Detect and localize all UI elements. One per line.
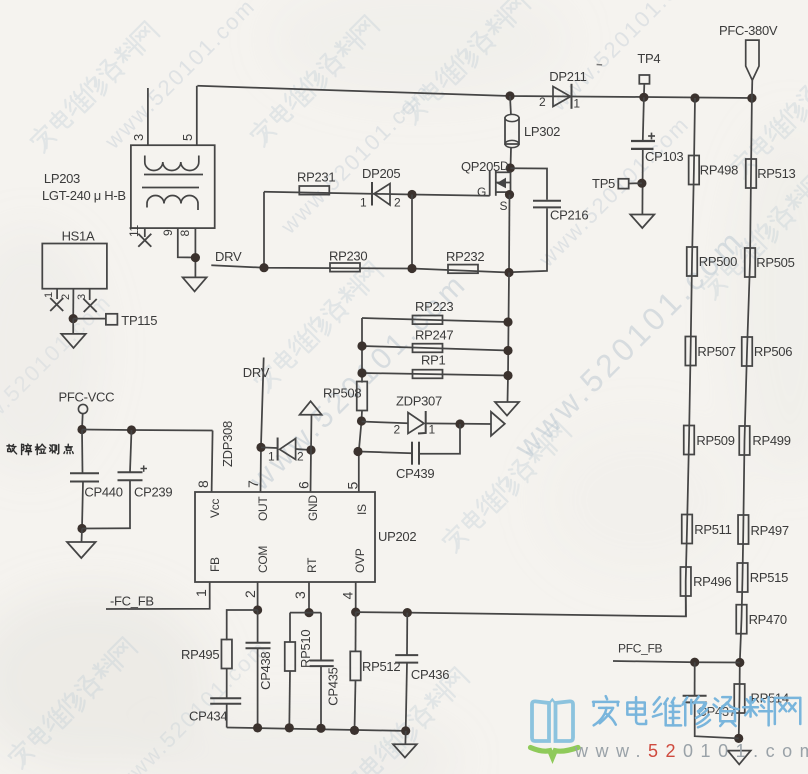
svg-text:G: G xyxy=(477,185,486,199)
svg-text:RP499: RP499 xyxy=(752,433,790,448)
svg-text:11: 11 xyxy=(127,225,141,237)
svg-text:4: 4 xyxy=(340,592,356,600)
svg-text:1: 1 xyxy=(360,196,367,210)
svg-text:CP436: CP436 xyxy=(411,667,449,682)
svg-text:RP505: RP505 xyxy=(756,255,794,270)
svg-text:OVP: OVP xyxy=(353,548,367,573)
svg-text:www.520101.com: www.520101.com xyxy=(574,741,808,761)
svg-text:RP506: RP506 xyxy=(754,344,792,359)
svg-text:5: 5 xyxy=(180,134,195,141)
svg-text:CP239: CP239 xyxy=(134,485,172,500)
svg-text:-FC_FB: -FC_FB xyxy=(110,594,154,609)
svg-text:CP438: CP438 xyxy=(258,652,273,690)
svg-text:8: 8 xyxy=(195,480,211,488)
svg-text:TP5: TP5 xyxy=(592,176,615,191)
svg-text:1: 1 xyxy=(43,292,55,298)
svg-text:RP500: RP500 xyxy=(699,254,737,269)
svg-text:FB: FB xyxy=(208,557,222,572)
svg-text:CP440: CP440 xyxy=(84,485,122,500)
svg-text:CP216: CP216 xyxy=(550,208,588,223)
svg-text:1: 1 xyxy=(429,423,436,437)
svg-text:RP507: RP507 xyxy=(697,344,735,359)
svg-text:RP495: RP495 xyxy=(181,647,219,662)
svg-text:2: 2 xyxy=(394,423,401,437)
svg-text:RP1: RP1 xyxy=(421,353,445,368)
svg-text:TP4: TP4 xyxy=(637,51,660,66)
svg-text:3: 3 xyxy=(292,591,308,599)
svg-text:RP230: RP230 xyxy=(329,249,367,264)
svg-text:COM: COM xyxy=(256,546,270,573)
svg-text:DP205: DP205 xyxy=(362,166,400,181)
svg-text:DRV: DRV xyxy=(243,365,270,380)
svg-text:ZDP307: ZDP307 xyxy=(396,394,442,409)
svg-text:GND: GND xyxy=(306,495,320,521)
svg-text:PFC-380V: PFC-380V xyxy=(719,23,778,38)
svg-text:CP103: CP103 xyxy=(645,149,683,164)
svg-text:1: 1 xyxy=(573,97,580,111)
svg-text:LGT-240 μ H-B: LGT-240 μ H-B xyxy=(42,188,126,203)
svg-text:RP510: RP510 xyxy=(298,630,313,668)
svg-text:6: 6 xyxy=(296,481,312,489)
svg-text:RP470: RP470 xyxy=(749,612,787,627)
svg-text:DRV: DRV xyxy=(215,249,242,264)
svg-text:1: 1 xyxy=(193,589,209,597)
svg-text:3: 3 xyxy=(76,294,88,300)
svg-text:RP508: RP508 xyxy=(323,386,361,401)
svg-text:CP434: CP434 xyxy=(189,709,227,724)
svg-text:RP512: RP512 xyxy=(362,659,400,674)
svg-text:D: D xyxy=(500,159,509,173)
svg-text:IS: IS xyxy=(355,504,369,515)
svg-text:PFC_FB: PFC_FB xyxy=(618,642,663,656)
svg-text:TP115: TP115 xyxy=(121,313,157,328)
svg-text:S: S xyxy=(500,199,508,213)
svg-text:OUT: OUT xyxy=(256,496,270,521)
svg-text:DP211: DP211 xyxy=(549,69,586,84)
svg-text:5: 5 xyxy=(345,482,361,490)
svg-text:RP496: RP496 xyxy=(693,574,731,589)
svg-text:7: 7 xyxy=(245,480,261,488)
svg-text:RP498: RP498 xyxy=(700,163,738,178)
svg-text:PFC-VCC: PFC-VCC xyxy=(59,390,115,405)
svg-text:2: 2 xyxy=(539,95,546,109)
svg-text:ZDP308: ZDP308 xyxy=(220,421,235,467)
svg-text:RP232: RP232 xyxy=(446,249,484,264)
svg-text:LP302: LP302 xyxy=(524,124,560,139)
svg-text:8: 8 xyxy=(178,230,192,237)
svg-text:LP203: LP203 xyxy=(44,171,80,186)
svg-text:RP511: RP511 xyxy=(694,522,731,537)
svg-text:UP202: UP202 xyxy=(378,529,416,544)
svg-text:RP509: RP509 xyxy=(696,433,734,448)
svg-text:RP515: RP515 xyxy=(750,570,788,585)
svg-text:QP205: QP205 xyxy=(461,159,500,174)
svg-text:RP247: RP247 xyxy=(415,328,453,343)
svg-text:1: 1 xyxy=(268,450,275,464)
svg-text:2: 2 xyxy=(60,294,72,300)
svg-text:RP223: RP223 xyxy=(415,299,453,314)
svg-text:HS1A: HS1A xyxy=(62,229,95,244)
svg-text:CP439: CP439 xyxy=(396,466,434,481)
svg-text:2: 2 xyxy=(297,450,304,464)
svg-text:2: 2 xyxy=(394,196,401,210)
svg-text:RP497: RP497 xyxy=(751,523,789,538)
svg-text:9: 9 xyxy=(161,229,175,236)
svg-text:3: 3 xyxy=(131,134,146,141)
svg-text:RP231: RP231 xyxy=(297,170,335,185)
svg-text:CP435: CP435 xyxy=(326,667,341,705)
svg-text:RP513: RP513 xyxy=(757,166,795,181)
svg-text:2: 2 xyxy=(242,590,258,598)
svg-text:RT: RT xyxy=(305,557,319,573)
svg-text:Vcc: Vcc xyxy=(208,499,222,518)
